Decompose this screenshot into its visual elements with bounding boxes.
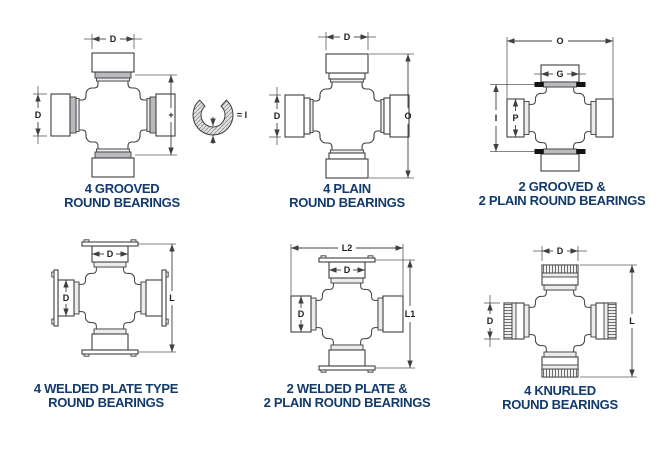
caption-line-2: ROUND BEARINGS: [8, 196, 236, 210]
dim-label-d-left: D: [35, 110, 42, 120]
2-welded-2-plain-drawing: L2 D D L1: [255, 238, 439, 378]
caption-line-1: 2 GROOVED &: [462, 180, 662, 194]
diagram-4-knurled: D D L 4 KNURLED ROUND BEARINGS: [462, 238, 658, 412]
dim-label-l2: L2: [342, 243, 353, 253]
dim-label-d-top: D: [557, 246, 564, 256]
figure-bearing-types: D D + = I 4 GROOVED ROUND BEAR: [0, 0, 670, 450]
dim-label-d-top-cap: D: [107, 249, 114, 259]
caption-line-2: 2 PLAIN ROUND BEARINGS: [255, 396, 439, 410]
dim-label-g: G: [556, 69, 563, 79]
caption-line-1: 4 KNURLED: [462, 384, 658, 398]
caption-line-2: ROUND BEARINGS: [462, 398, 658, 412]
caption: 4 PLAIN ROUND BEARINGS: [262, 182, 432, 210]
diagram-4-grooved: D D + = I 4 GROOVED ROUND BEAR: [8, 18, 260, 210]
diagram-2-grooved-2-plain: O G I P 2 GROOVED & 2 PLAIN ROUND BEARIN…: [462, 18, 662, 208]
dim-label-d-left: D: [274, 111, 281, 121]
diagram-4-plain: D D O 4 PLAIN ROUND BEARINGS: [262, 18, 432, 210]
4-plain-drawing: D D O: [262, 18, 432, 182]
dim-label-plus: +: [168, 110, 173, 120]
caption-line-1: 4 GROOVED: [8, 182, 236, 196]
caption-line-2: ROUND BEARINGS: [15, 396, 197, 410]
diagram-4-welded-plate: D D L 4 WELDED PLATE TYPE ROUND BEARINGS: [15, 238, 197, 410]
dim-label-l1: L1: [405, 309, 416, 319]
4-knurled-drawing: D D L: [462, 238, 658, 384]
2-grooved-2-plain-drawing: O G I P: [462, 18, 662, 180]
dim-label-d-top-cap: D: [344, 265, 351, 275]
dim-label-d-left-cap: D: [63, 293, 70, 303]
4-welded-plate-drawing: D D L: [15, 238, 197, 378]
caption: 2 GROOVED & 2 PLAIN ROUND BEARINGS: [462, 180, 662, 208]
caption-line-1: 4 WELDED PLATE TYPE: [15, 382, 197, 396]
caption: 4 GROOVED ROUND BEARINGS: [8, 182, 236, 210]
4-grooved-drawing: D D + = I: [8, 18, 260, 180]
dim-label-p: P: [512, 113, 518, 123]
caption: 4 WELDED PLATE TYPE ROUND BEARINGS: [15, 382, 197, 410]
caption-line-2: ROUND BEARINGS: [262, 196, 432, 210]
dim-label-d-top: D: [110, 34, 117, 44]
caption-line-2: 2 PLAIN ROUND BEARINGS: [462, 194, 662, 208]
caption: 4 KNURLED ROUND BEARINGS: [462, 384, 658, 412]
dim-label-i: I: [495, 113, 498, 123]
dim-label-d-left-cap: D: [298, 309, 305, 319]
dim-label-l: L: [629, 316, 635, 326]
dim-label-l: L: [169, 293, 175, 303]
caption: 2 WELDED PLATE & 2 PLAIN ROUND BEARINGS: [255, 382, 439, 410]
dim-label-o-right: O: [404, 111, 411, 121]
dim-label-o-overall: O: [556, 36, 563, 46]
caption-line-1: 2 WELDED PLATE &: [255, 382, 439, 396]
dim-label-d-left: D: [487, 316, 494, 326]
dim-label-equals-i: = I: [237, 110, 247, 120]
dim-label-d-top: D: [344, 32, 351, 42]
diagram-2-welded-2-plain: L2 D D L1 2 WELDED PLATE & 2 PLAIN ROUND…: [255, 238, 439, 410]
caption-line-1: 4 PLAIN: [262, 182, 432, 196]
